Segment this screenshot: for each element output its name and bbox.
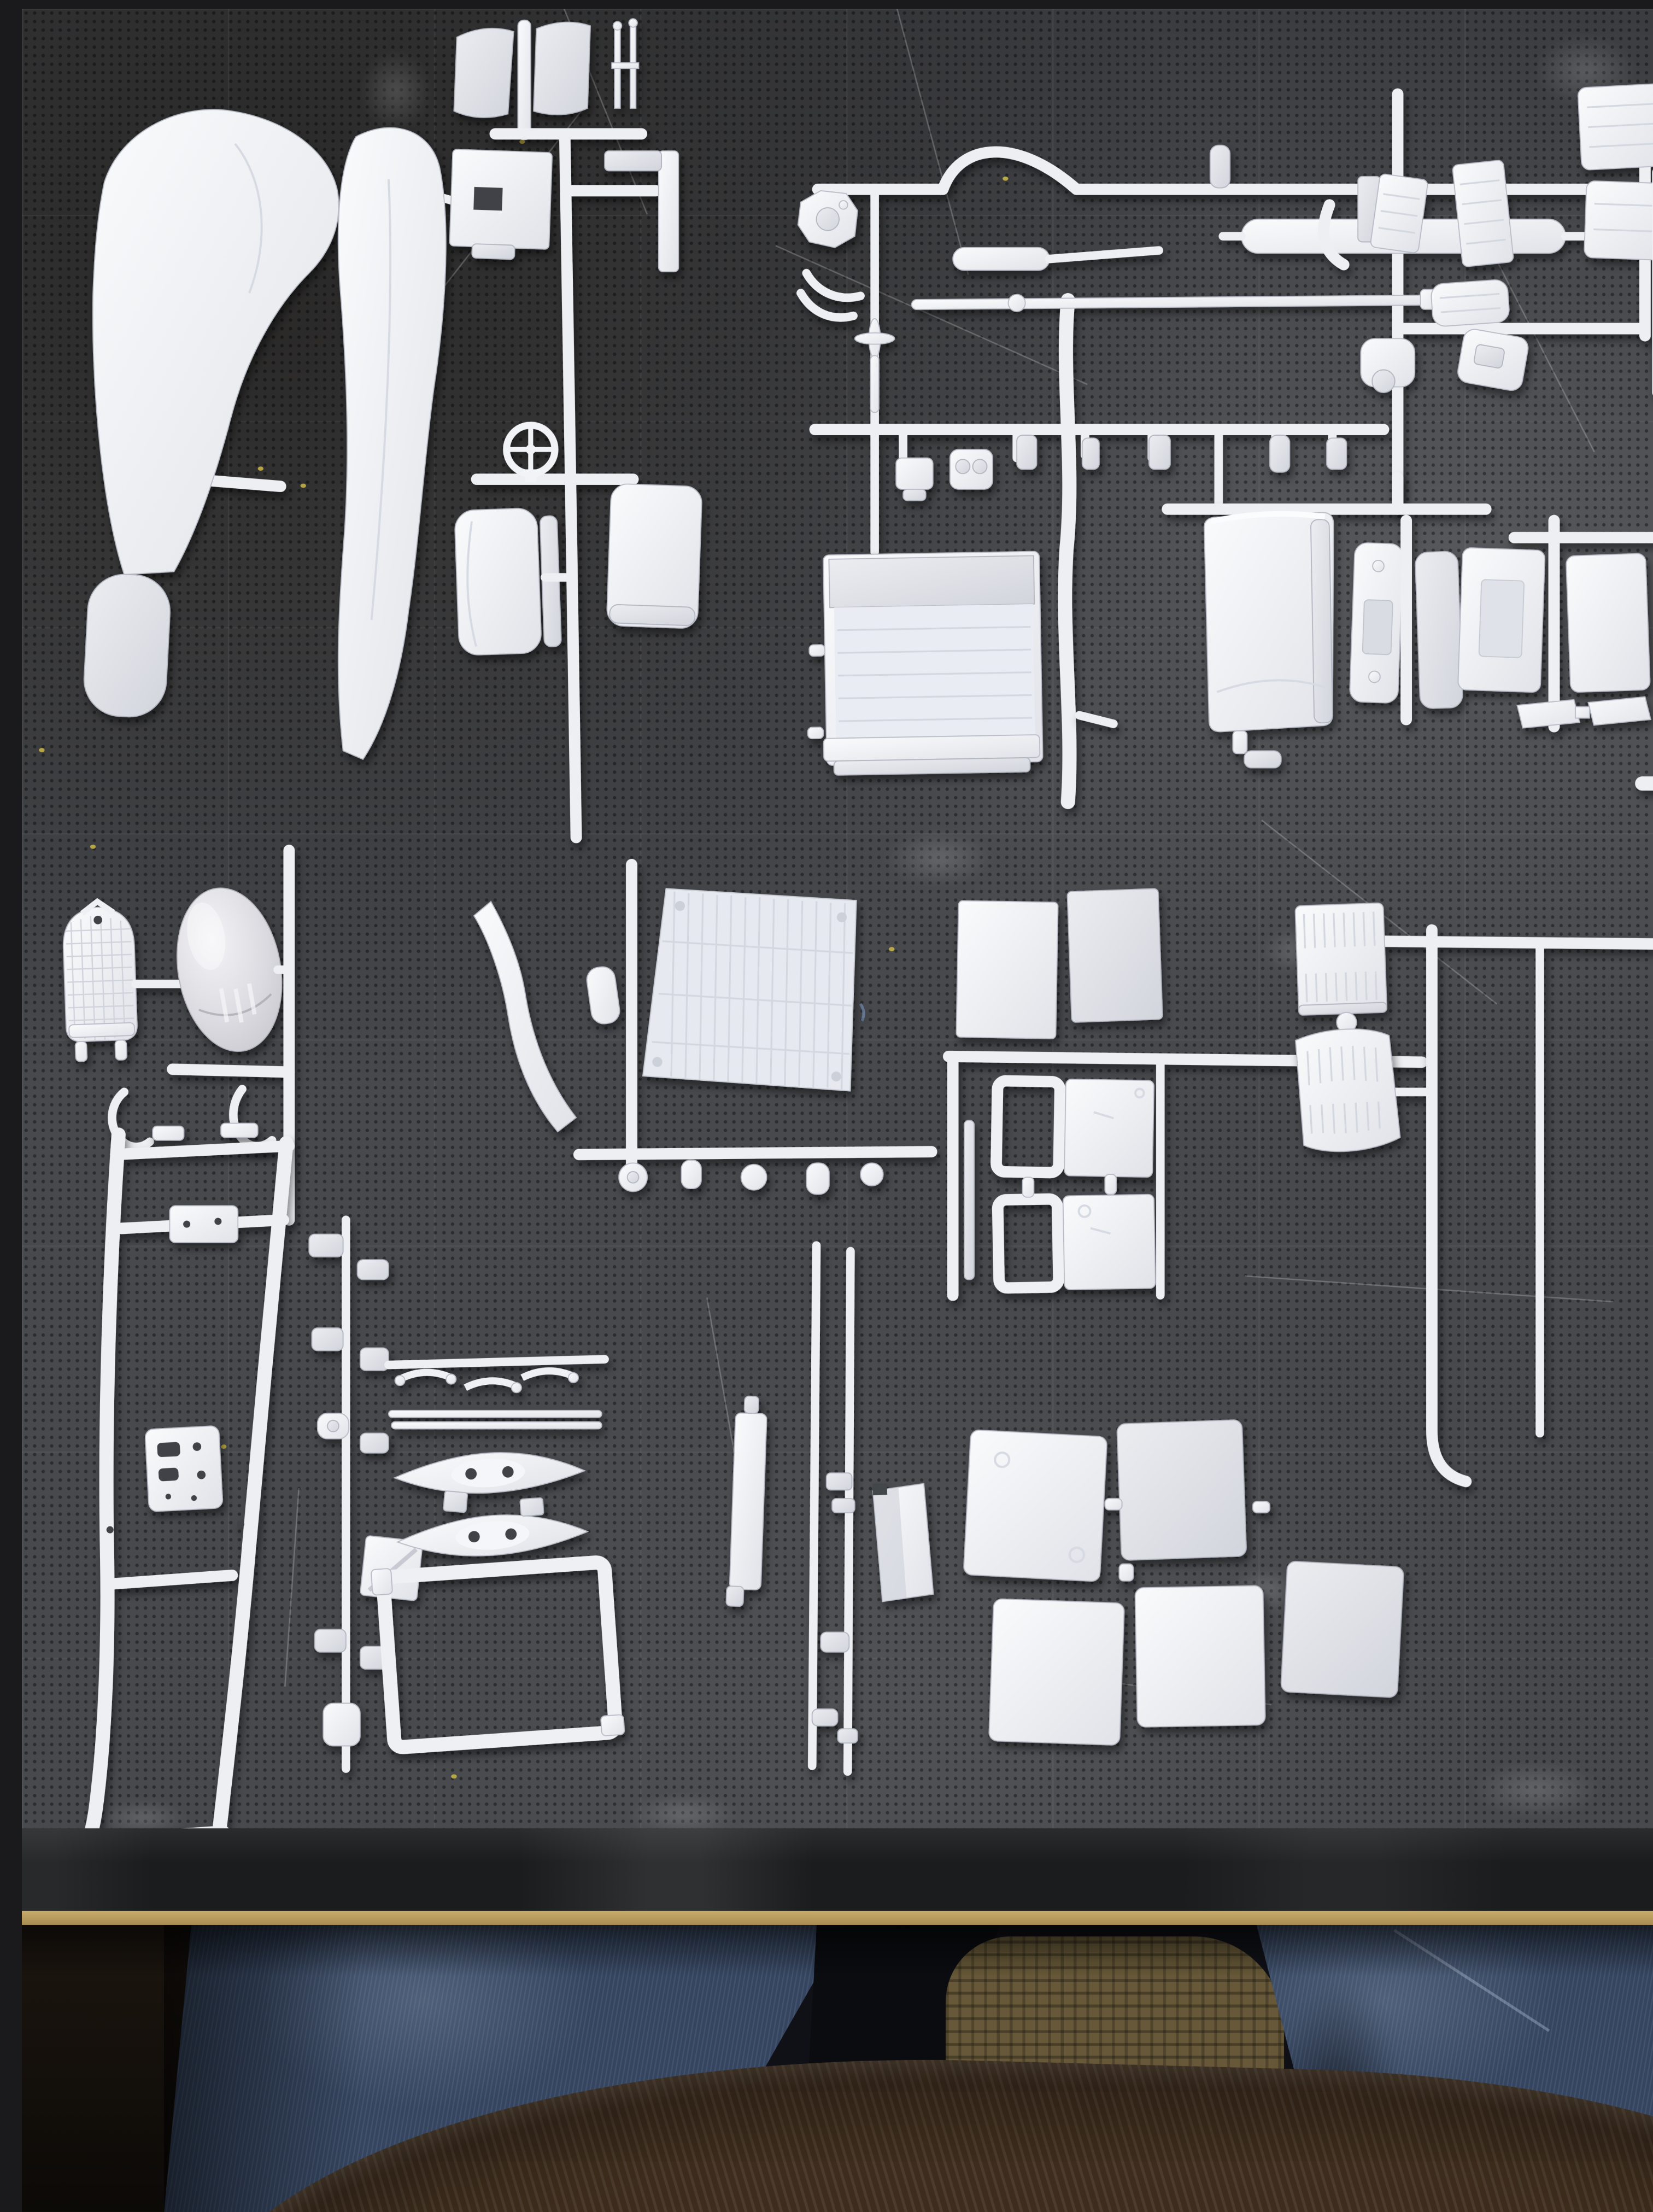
runner — [518, 20, 530, 139]
ribbed-block — [1584, 181, 1653, 261]
pipe — [1050, 250, 1159, 259]
small-part — [1327, 438, 1346, 469]
bed-stub — [809, 645, 825, 656]
glass-panel — [1067, 888, 1163, 1022]
wood-trim — [22, 1911, 1653, 1925]
runner — [173, 1069, 289, 1072]
firewall-hole — [473, 187, 502, 210]
pen-mark — [860, 1004, 864, 1021]
table-edge — [22, 1828, 1653, 1913]
small-muffler — [953, 248, 1050, 271]
bracket — [357, 1260, 389, 1279]
runner — [1384, 941, 1653, 944]
bracket — [315, 1629, 346, 1652]
wheel-tub — [872, 1482, 933, 1602]
small-part — [1017, 435, 1036, 469]
windshield-frame — [371, 1553, 625, 1751]
flat-panel — [1281, 1561, 1404, 1698]
runner — [1432, 930, 1466, 1482]
sprue-bed-floor — [474, 864, 934, 1771]
rear-bumper — [1415, 551, 1463, 709]
frame-tab — [153, 1126, 184, 1140]
flat-panel — [989, 1599, 1124, 1745]
bracket — [360, 1433, 389, 1453]
curved-tailpipe — [474, 902, 576, 1132]
hinge-pin-rods — [612, 19, 638, 108]
valve-cover — [1431, 279, 1510, 327]
runner — [1065, 300, 1069, 802]
sprue-stub — [1023, 1177, 1034, 1197]
valance-panel-recessed — [1458, 548, 1545, 693]
cowl-panel-left — [454, 28, 513, 118]
frame-rail-right — [218, 1143, 286, 1842]
table-shadow — [22, 1925, 1653, 1976]
bed-floor-panel — [643, 888, 857, 1091]
axle-rod — [391, 1422, 602, 1429]
frame-rail-left — [81, 1134, 119, 1857]
bracket — [820, 1632, 849, 1652]
sprue-cab-and-fenders — [82, 19, 702, 838]
bed-skirt — [834, 758, 1030, 775]
front-fender-right — [338, 128, 446, 759]
driveshaft — [912, 289, 1439, 314]
bracket — [826, 1473, 852, 1490]
frame-plate — [145, 1426, 223, 1512]
bracket — [309, 1234, 343, 1257]
frame-hole — [237, 1520, 244, 1528]
frame-tab — [221, 1123, 258, 1138]
bed-stub — [808, 727, 824, 739]
exhaust-hump — [943, 152, 1076, 189]
flat-panel — [1117, 1420, 1246, 1560]
frame-crossmember — [113, 1575, 232, 1584]
runner — [579, 1152, 931, 1155]
bracket — [837, 1729, 857, 1743]
flat-panel — [1135, 1585, 1265, 1727]
bed-front-wall — [829, 555, 1034, 607]
front-bumper — [1350, 542, 1404, 703]
cooling-fan — [855, 319, 895, 413]
ribbed-block — [1578, 83, 1653, 170]
transmission — [1361, 338, 1415, 393]
sprue-stub — [1105, 1174, 1116, 1194]
glass-panel — [956, 900, 1058, 1039]
seat-bottom — [606, 483, 702, 629]
trim-strip — [964, 1120, 974, 1279]
sprue-chassis-frame — [81, 1123, 625, 1857]
photo: .rn{stroke:#edeff3;stroke-width:8;fill:n… — [22, 9, 1653, 2212]
carburetor — [896, 458, 933, 501]
oil-pan — [1456, 327, 1530, 392]
runner — [389, 1359, 605, 1365]
carburetor — [950, 449, 993, 489]
firewall-tab — [472, 244, 515, 260]
bed-lower-rail — [824, 735, 1040, 761]
pulley-row — [619, 1160, 883, 1194]
splash-apron-wings — [1517, 697, 1650, 728]
sprue-tailgate-seat — [963, 903, 1653, 1745]
bed-side-panel — [726, 1396, 767, 1607]
small-part — [1082, 438, 1099, 469]
cab-roof-shell — [1204, 512, 1338, 732]
runner — [565, 137, 576, 838]
door-unit-lower — [998, 1195, 1156, 1291]
elbow-pipe — [806, 273, 860, 298]
engine-block-half — [1452, 160, 1514, 267]
cab-stub — [1233, 731, 1247, 754]
cylinder-part — [318, 1413, 349, 1439]
running-board — [394, 1448, 587, 1517]
tailgate — [1295, 903, 1387, 1015]
shift-knob — [585, 965, 621, 1025]
runner — [1080, 715, 1113, 724]
sprue-stub — [1253, 1501, 1270, 1513]
door-unit-upper — [996, 1078, 1154, 1177]
cowl-panel-right — [534, 22, 590, 115]
valance-panel-plain — [1566, 553, 1650, 693]
sprue-front-end — [62, 850, 294, 1220]
bracket — [312, 1328, 343, 1351]
air-cleaner-base — [798, 191, 858, 248]
small-part — [1210, 145, 1230, 188]
flat-panel — [963, 1430, 1107, 1582]
bracket — [360, 1348, 389, 1371]
frame-hole — [107, 1526, 114, 1534]
l-channel-brace — [605, 151, 678, 272]
sprue-stub — [1119, 1564, 1133, 1581]
sprue-cab-shell — [1168, 478, 1653, 783]
bracket — [832, 1499, 855, 1513]
fender-skirt-left — [82, 572, 172, 719]
bracket — [812, 1709, 838, 1726]
front-fender-left — [93, 109, 339, 574]
small-part — [1244, 751, 1281, 768]
small-part — [1149, 435, 1170, 469]
bench-seat — [1295, 1027, 1400, 1154]
running-board — [395, 1495, 589, 1562]
axle-rod — [389, 1411, 602, 1418]
frame-center-box — [169, 1206, 238, 1243]
engine-block-half — [1370, 173, 1428, 253]
bracket — [323, 1703, 360, 1746]
small-part — [1270, 435, 1289, 472]
leaf-springs — [395, 1371, 578, 1393]
photographer-lap — [22, 1925, 1653, 2212]
sprue-stub — [1105, 1499, 1122, 1510]
radiator-grille — [62, 900, 138, 1062]
